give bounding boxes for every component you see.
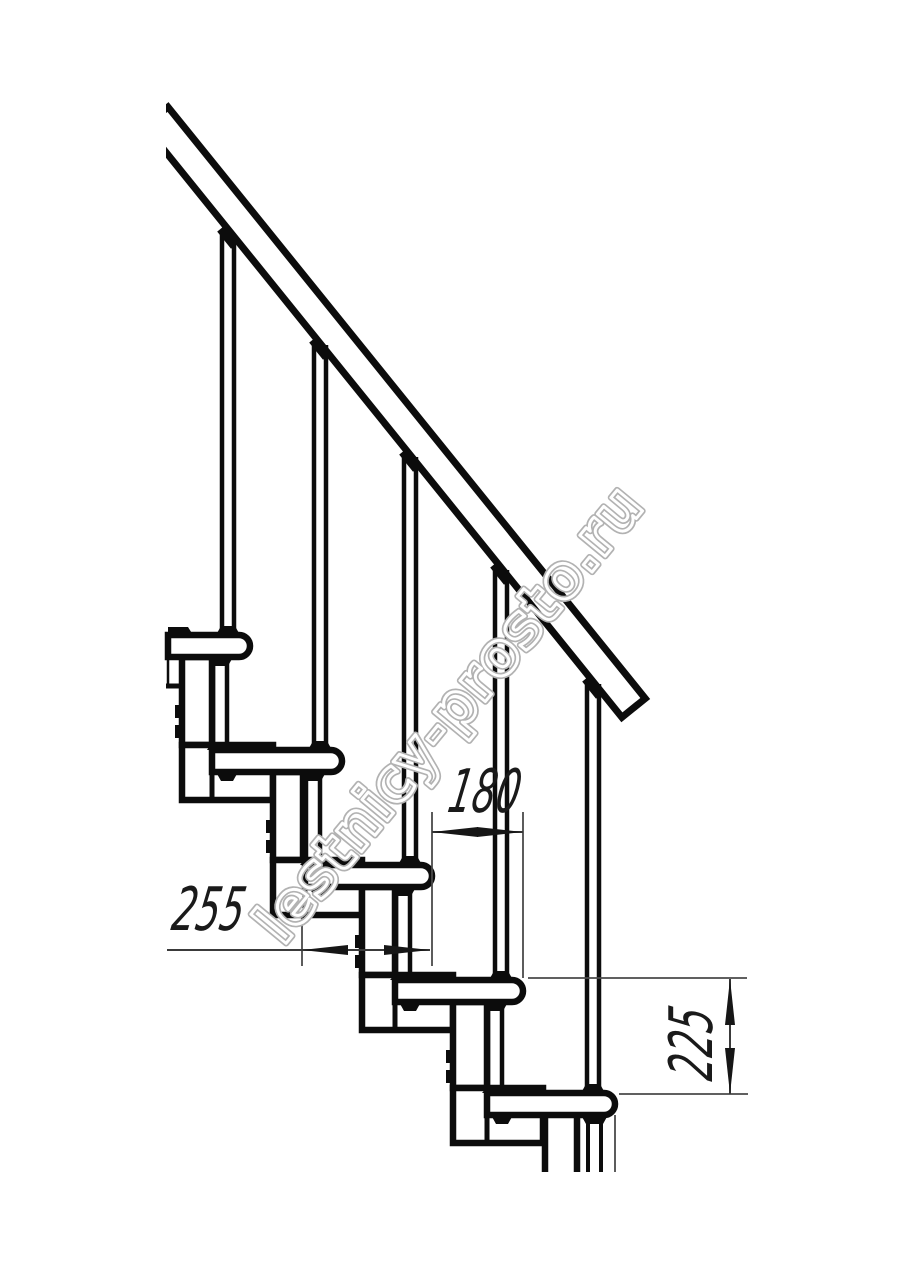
dimension-label-run: 255 [167,874,250,944]
tread-4 [395,980,523,1002]
watermark-text: lestnicy-prosto.ru [241,472,658,956]
dimension-spacing: 180 [432,756,527,978]
watermark: lestnicy-prosto.ru lestnicy-prosto.ru [241,472,658,956]
drawing-left-cut [0,0,166,1280]
handrail [145,107,646,717]
tread-1 [168,635,250,657]
staircase-drawing-canvas: 255 180 225 lestnicy-prosto.ru lestnicy-… [0,0,914,1280]
tread-5 [487,1093,615,1115]
dimension-label-spacing: 180 [443,756,526,826]
dimension-rise: 225 [528,978,748,1094]
baluster-5 [581,675,605,1093]
baluster-2 [308,336,332,750]
dimension-label-rise: 225 [656,1001,726,1084]
tread-2 [212,750,342,772]
baluster-1 [216,225,240,635]
staircase-technical-drawing: 255 180 225 lestnicy-prosto.ru lestnicy-… [0,0,914,1280]
